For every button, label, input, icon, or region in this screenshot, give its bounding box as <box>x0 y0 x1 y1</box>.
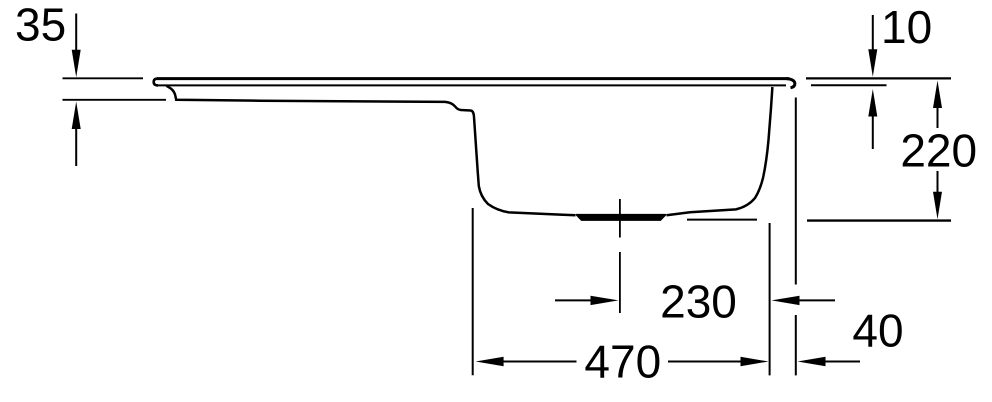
svg-text:470: 470 <box>584 335 661 387</box>
svg-text:220: 220 <box>900 125 977 177</box>
svg-text:40: 40 <box>852 305 903 357</box>
svg-text:35: 35 <box>15 0 66 50</box>
svg-text:230: 230 <box>660 275 737 327</box>
svg-text:10: 10 <box>881 1 932 53</box>
